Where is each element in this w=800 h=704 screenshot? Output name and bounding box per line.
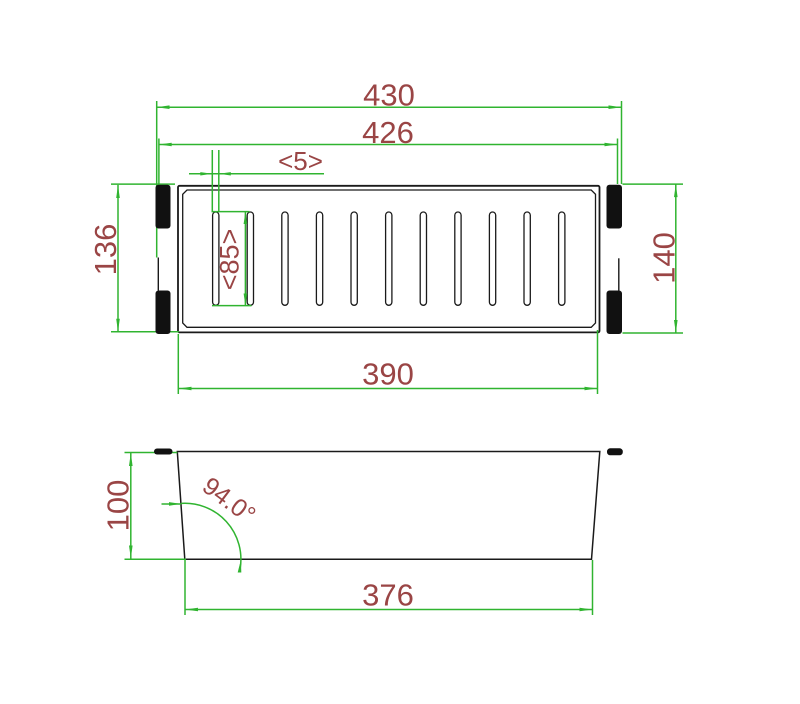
svg-text:430: 430 xyxy=(363,78,415,113)
svg-text:136: 136 xyxy=(88,224,123,276)
svg-text:390: 390 xyxy=(362,357,414,392)
svg-text:140: 140 xyxy=(647,232,682,284)
svg-text:100: 100 xyxy=(101,480,136,532)
svg-text:426: 426 xyxy=(362,115,414,150)
svg-text:<5>: <5> xyxy=(278,146,323,176)
svg-text:<85>: <85> xyxy=(215,229,245,291)
svg-text:376: 376 xyxy=(362,578,414,613)
